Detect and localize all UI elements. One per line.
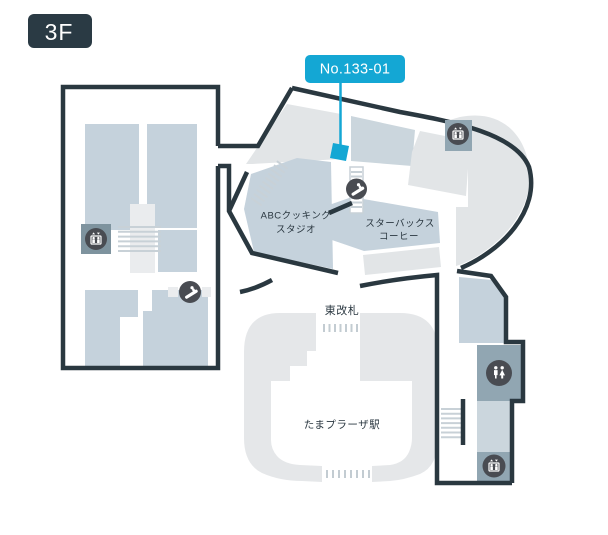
abc-cooking-label-line1: ABCクッキング (261, 210, 332, 222)
restroom-icon (486, 360, 512, 386)
stairs (441, 409, 461, 437)
elevator-icon (447, 123, 469, 145)
map-marker[interactable] (330, 143, 349, 161)
elevator-icon (483, 455, 506, 478)
starbucks-label-line2: コーヒー (379, 232, 419, 243)
escalator-icon (346, 179, 367, 200)
wall (240, 280, 272, 292)
escalator-landing (202, 287, 211, 297)
abc-cooking-label-line2: スタジオ (276, 225, 316, 236)
concourse-block (246, 104, 341, 164)
station-east-wing (360, 313, 438, 482)
floor-map-3f: ABCクッキング スタジオ スターバックス コーヒー 東改札 たまプラーザ駅 N… (0, 0, 608, 535)
marker-callout[interactable]: No.133-01 (305, 55, 405, 83)
station-name-label: たまプラーザ駅 (304, 419, 380, 431)
station-west-wing (244, 313, 322, 482)
escalator-landing (168, 287, 178, 297)
wall (229, 172, 247, 211)
station-building (244, 313, 438, 482)
concourse-block (351, 116, 415, 166)
room-block (130, 204, 155, 273)
starbucks-label-line1: スターバックス (365, 219, 435, 230)
room-block (85, 290, 138, 366)
east-gate-label: 東改札 (325, 303, 360, 317)
ticket-gates-top (323, 324, 358, 332)
concourse-block (363, 247, 441, 275)
corridor-block (477, 401, 511, 452)
room-block (143, 290, 208, 366)
floor-badge: 3F (28, 14, 92, 48)
room-block (158, 230, 197, 272)
marker-callout-label: No.133-01 (320, 62, 390, 78)
escalator-icon (179, 281, 201, 303)
ticket-gates-bottom (326, 470, 370, 478)
floor-badge-label: 3F (45, 19, 74, 45)
elevator-icon (85, 228, 107, 250)
